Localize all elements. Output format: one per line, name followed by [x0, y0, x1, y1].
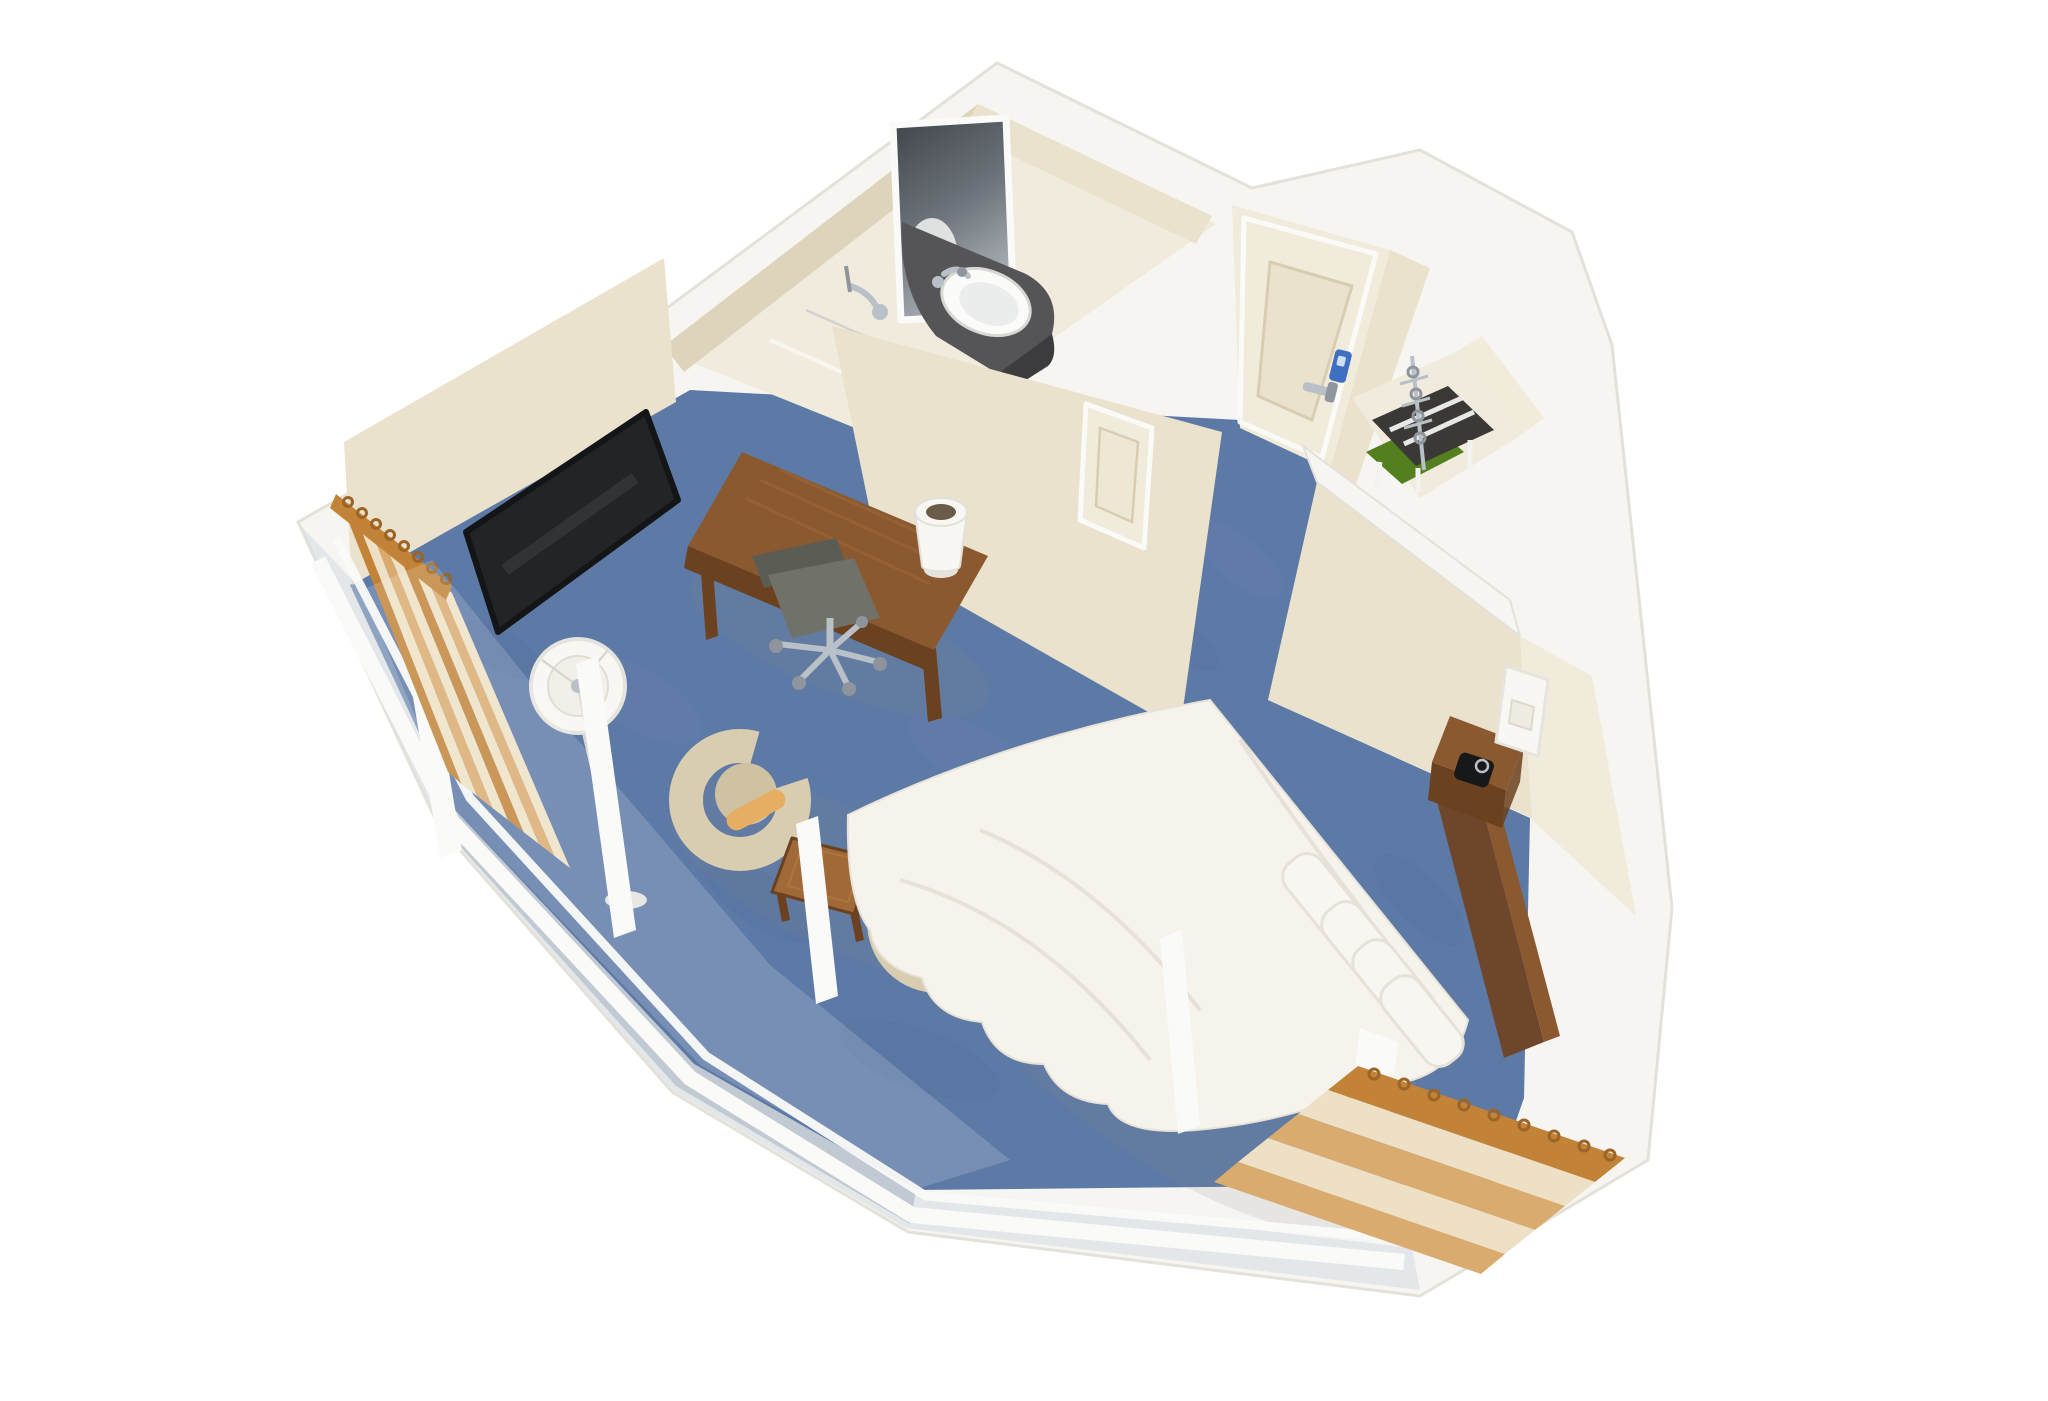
desk-lamp: [915, 498, 967, 578]
table-lamp: [1496, 666, 1548, 756]
sliding-door-panel: [1096, 428, 1138, 522]
room-cutaway-scene: [0, 0, 2048, 1401]
room-rendering: [0, 0, 2048, 1401]
